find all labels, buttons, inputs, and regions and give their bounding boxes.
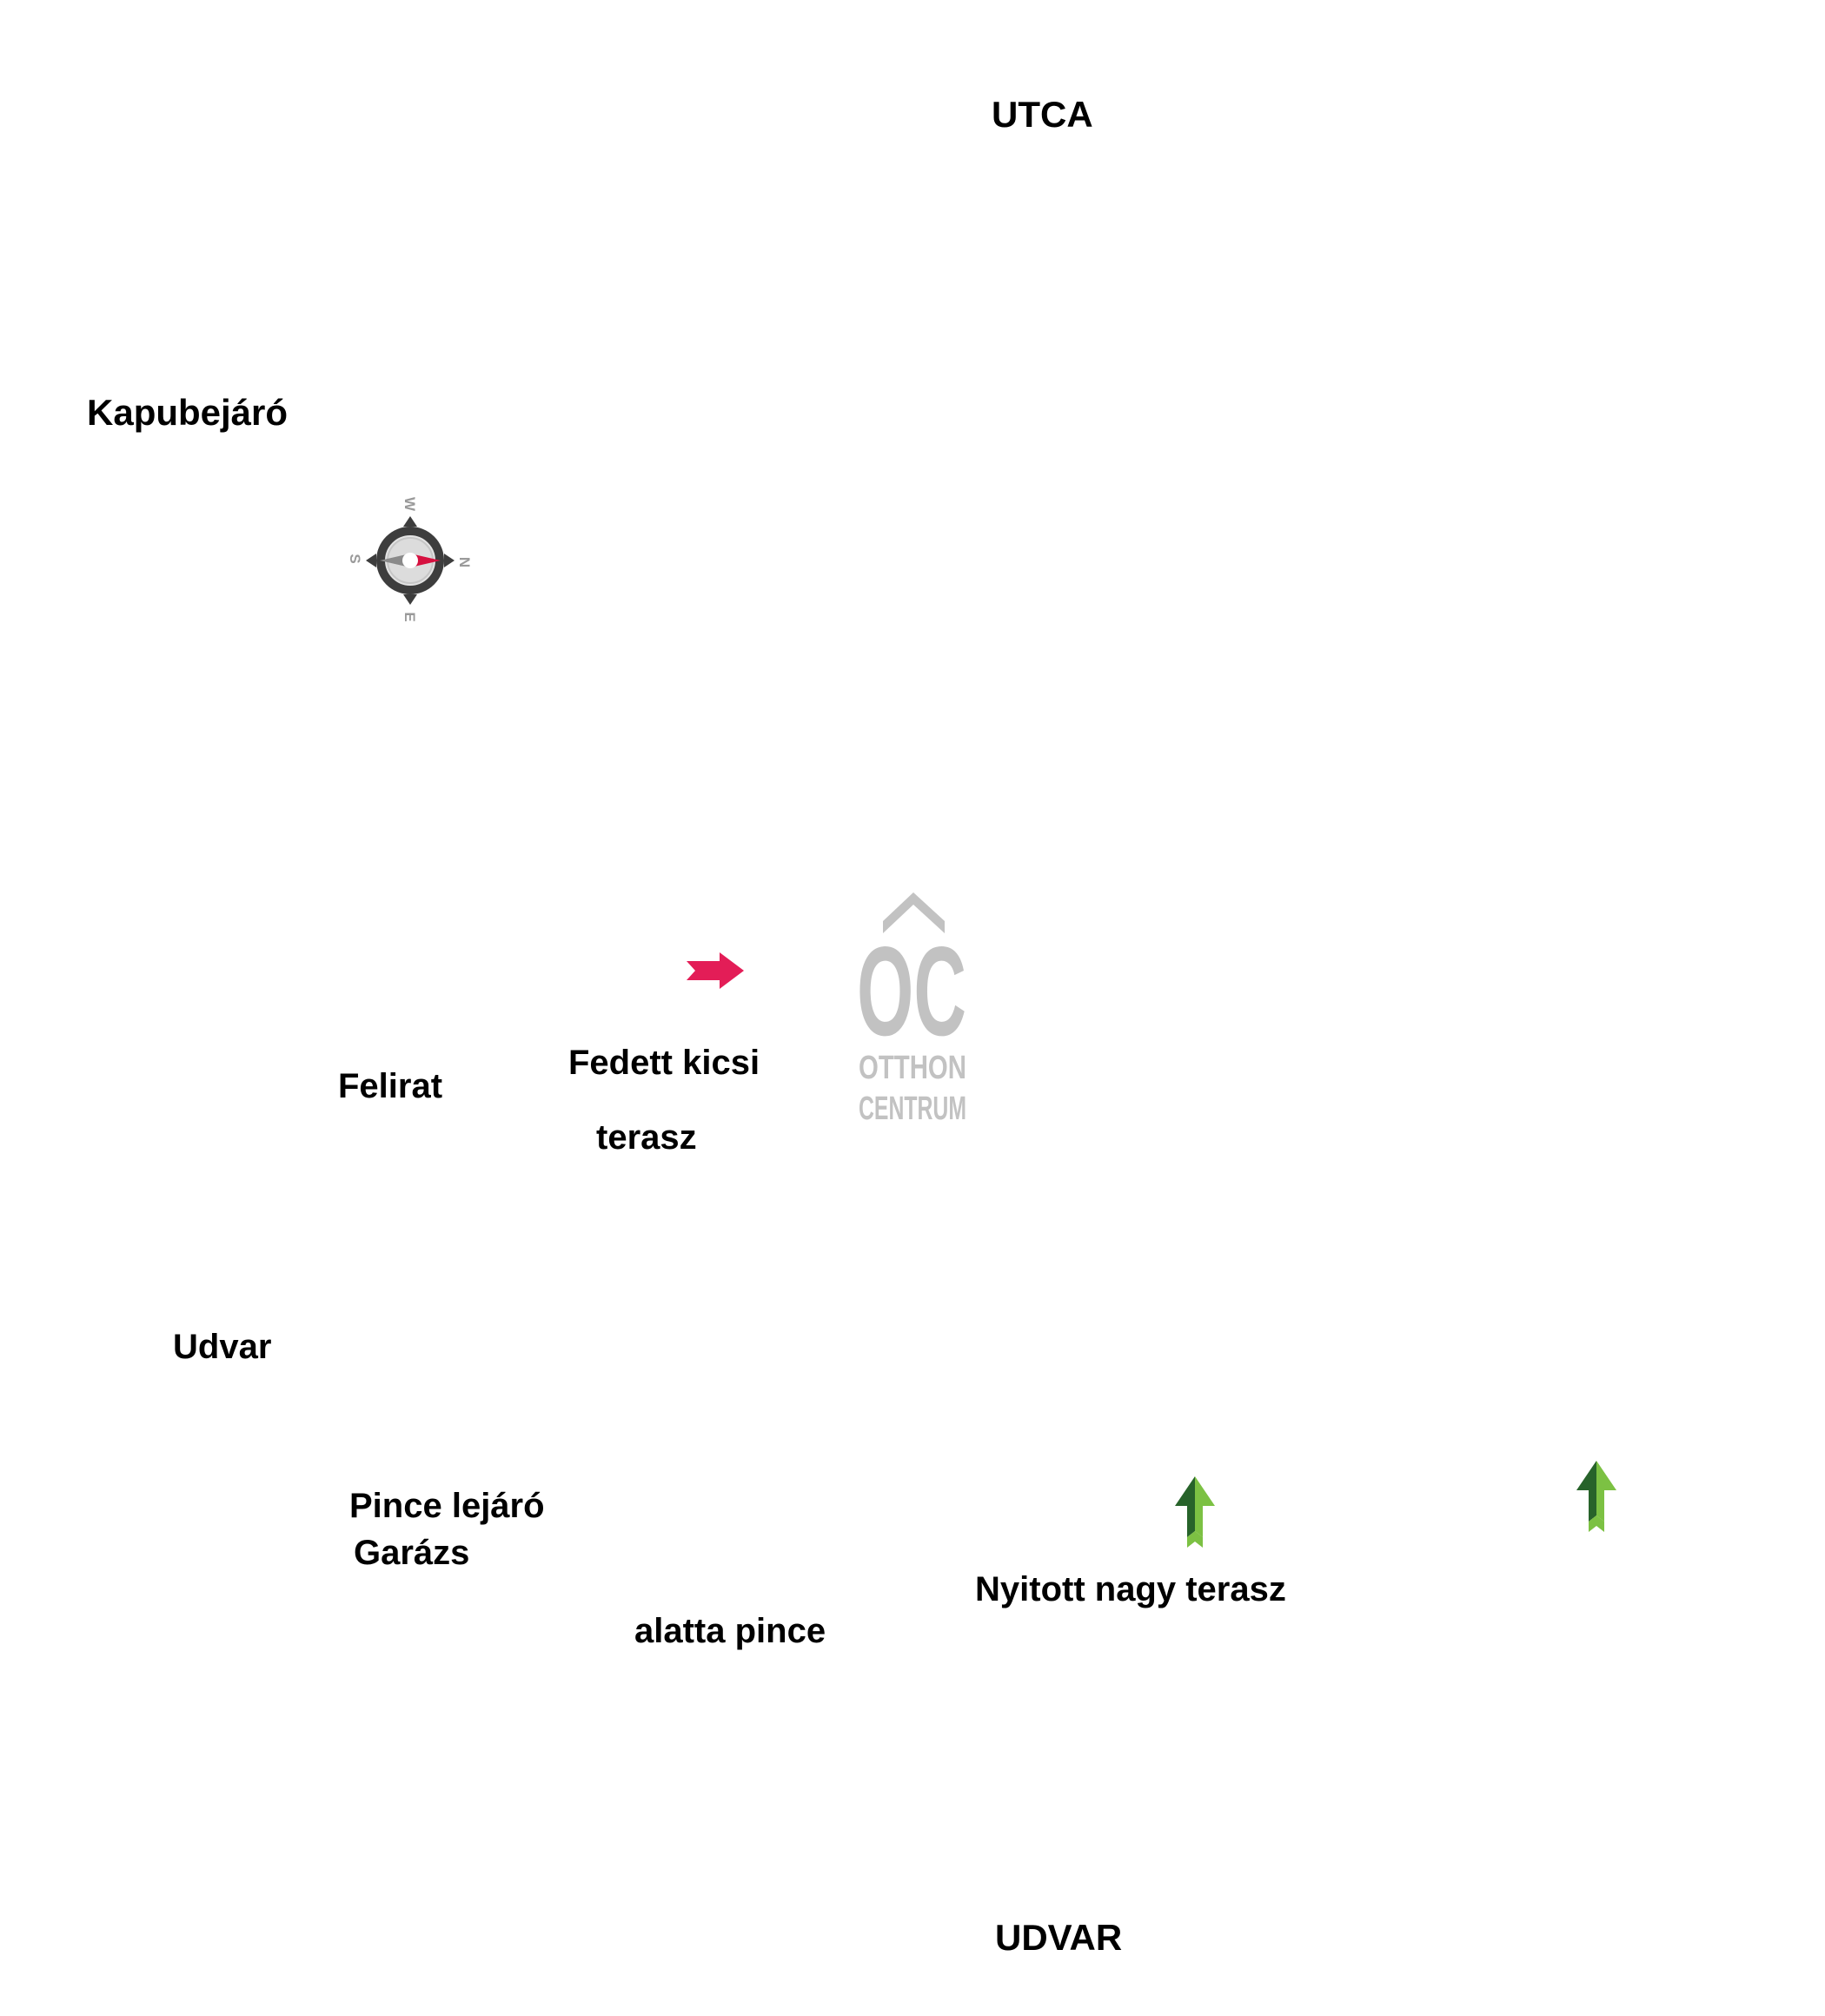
svg-text:S: S — [347, 554, 363, 563]
svg-text:Garázs: Garázs — [354, 1534, 469, 1572]
svg-text:terasz: terasz — [596, 1118, 697, 1157]
svg-text:Kapubejáró: Kapubejáró — [87, 392, 288, 433]
svg-text:UDVAR: UDVAR — [995, 1917, 1122, 1958]
svg-text:N: N — [456, 557, 473, 567]
svg-text:UTCA: UTCA — [992, 94, 1093, 135]
svg-text:CENTRUM: CENTRUM — [859, 1091, 966, 1127]
svg-text:W: W — [401, 497, 418, 512]
svg-text:alatta pince: alatta pince — [634, 1612, 826, 1650]
svg-text:Pince lejáró: Pince lejáró — [349, 1487, 545, 1525]
svg-text:Udvar: Udvar — [173, 1328, 271, 1366]
svg-text:OC: OC — [857, 920, 966, 1062]
svg-text:Felirat: Felirat — [338, 1067, 442, 1105]
svg-text:OTTHON: OTTHON — [859, 1050, 966, 1086]
svg-text:Fedett kicsi: Fedett kicsi — [568, 1044, 760, 1082]
svg-text:Nyitott nagy terasz: Nyitott nagy terasz — [975, 1570, 1286, 1608]
svg-text:E: E — [401, 612, 418, 621]
